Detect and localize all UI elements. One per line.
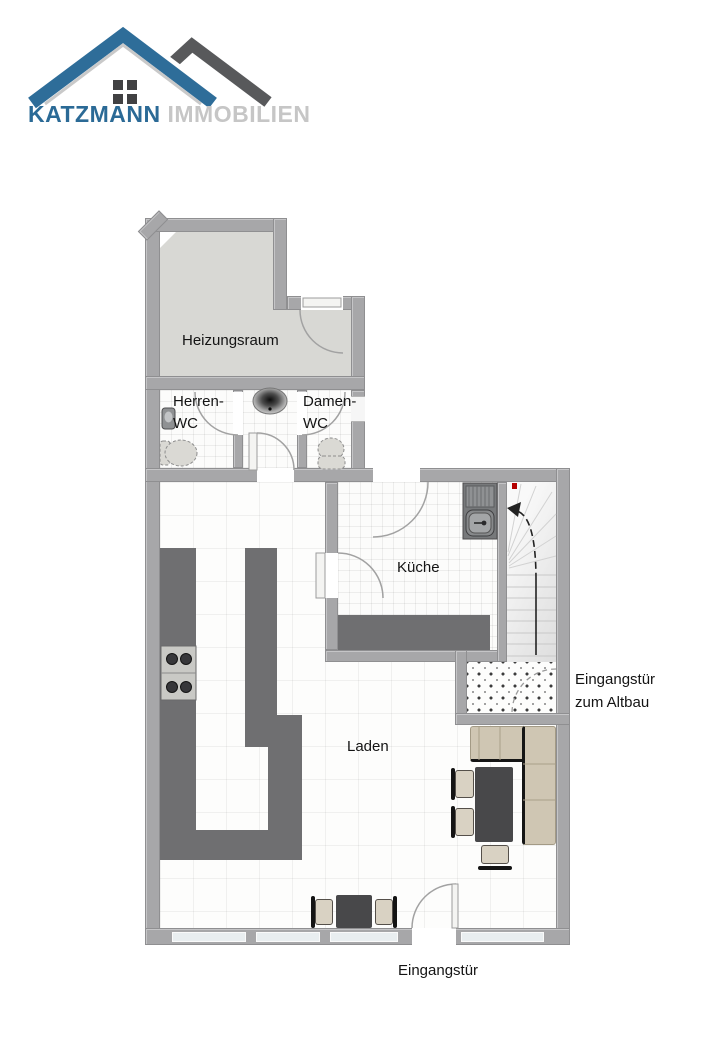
room-label-herren-wc: Herren- WC <box>173 391 224 435</box>
label-line: Herren- <box>173 391 224 413</box>
altbau-vestibule-floor <box>467 662 556 713</box>
chair-back <box>478 866 512 870</box>
wall-left <box>145 218 160 945</box>
wc-vestibule-floor <box>243 390 297 468</box>
chair-seat <box>481 845 509 864</box>
kitchen-counter <box>335 615 490 650</box>
label-line: WC <box>303 413 356 435</box>
door-gap-main-entrance <box>412 928 456 945</box>
label-line: Damen- <box>303 391 356 413</box>
wall-block-top <box>145 468 570 482</box>
wall-wc-top <box>145 376 365 390</box>
wall-heiz-top <box>152 218 287 232</box>
chair-seat <box>455 808 474 836</box>
sofa-vertical <box>522 726 556 845</box>
window-shopfront <box>172 932 246 942</box>
door-gap-herren-wc <box>233 392 243 435</box>
wall-right <box>556 468 570 945</box>
dining-table <box>475 767 513 842</box>
label-line: zum Altbau <box>575 691 655 714</box>
chair-seat <box>455 770 474 798</box>
heizungsraum-floor <box>160 232 273 311</box>
wall-altbau-bottom <box>455 713 570 725</box>
stairs-area <box>507 482 556 662</box>
room-label-laden: Laden <box>347 736 389 758</box>
shop-counter-middle-lower <box>268 715 302 830</box>
label-line: Eingangstür <box>575 668 655 691</box>
annotation-main-entrance: Eingangstür <box>398 960 478 982</box>
cafe-table <box>336 895 372 928</box>
chair-back <box>311 896 315 928</box>
door-gap-kueche-top <box>373 468 420 482</box>
door-gap-wc-vestibule <box>257 468 294 482</box>
chair-back <box>451 768 455 800</box>
logo-suffix-text: IMMOBILIEN <box>168 101 311 127</box>
logo-wordmark: KATZMANN IMMOBILIEN <box>28 101 311 128</box>
chair-seat <box>375 899 393 925</box>
wall-kitchen-bottom <box>325 650 507 662</box>
chair-back <box>451 806 455 838</box>
shop-counter-bottom <box>160 830 302 860</box>
window-shopfront <box>330 932 398 942</box>
chair-back <box>393 896 397 928</box>
chair-seat <box>315 899 333 925</box>
door-gap-kueche-left <box>325 553 338 598</box>
window-shopfront <box>256 932 320 942</box>
annotation-altbau-entrance: Eingangstür zum Altbau <box>575 668 655 714</box>
room-label-heizungsraum: Heizungsraum <box>182 330 279 352</box>
room-label-damen-wc: Damen- WC <box>303 391 356 435</box>
room-label-kueche: Küche <box>397 557 440 579</box>
company-logo: KATZMANN IMMOBILIEN <box>0 0 300 150</box>
label-line: WC <box>173 413 224 435</box>
door-gap-heizungsraum <box>301 296 343 310</box>
shop-counter-left <box>160 548 196 860</box>
window-shopfront <box>461 932 544 942</box>
wall-kitchen-right <box>497 482 507 662</box>
logo-brand-text: KATZMANN <box>28 101 161 127</box>
wall-heiz-step <box>273 218 287 310</box>
